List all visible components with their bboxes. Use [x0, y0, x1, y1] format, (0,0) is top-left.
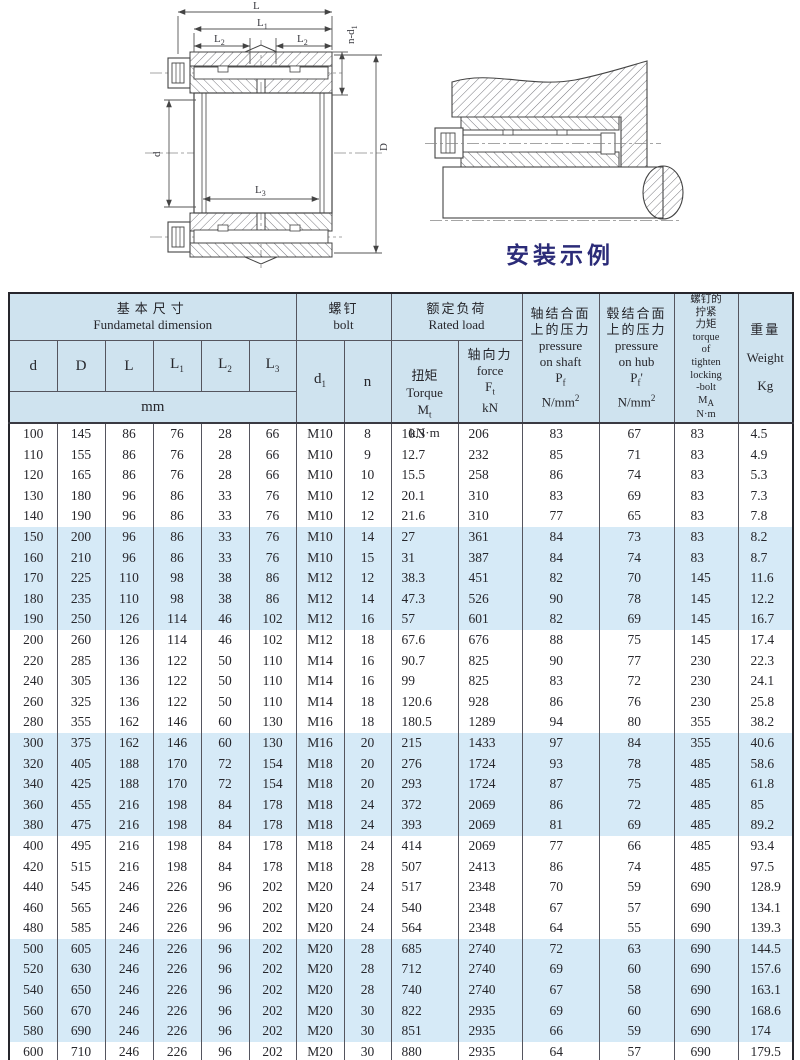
cell-L2: 96: [201, 1042, 249, 1060]
cell-pressure-hub: 72: [599, 795, 674, 816]
table-row: 180 235 110 98 38 86 M12 14 47.3 526 90 …: [9, 589, 793, 610]
cell-axial-force: 825: [458, 671, 522, 692]
bottom-collar: [190, 213, 332, 264]
cell-d1: M16: [296, 733, 344, 754]
cell-d1: M20: [296, 877, 344, 898]
cross-section-drawing: L L1 L2 L2 n-d1: [90, 0, 400, 275]
cell-axial-force: 2348: [458, 898, 522, 919]
cell-L1: 198: [153, 836, 201, 857]
cell-D: 200: [57, 527, 105, 548]
cell-d: 360: [9, 795, 57, 816]
cell-pressure-shaft: 64: [522, 918, 599, 939]
cell-torque: 15.5: [391, 465, 458, 486]
cell-L3: 154: [249, 754, 296, 775]
cell-tighten-torque: 230: [674, 651, 738, 672]
cell-L2: 84: [201, 836, 249, 857]
cell-d: 380: [9, 815, 57, 836]
dim-label-L2-right: L2: [297, 33, 308, 47]
table-row: 440 545 246 226 96 202 M20 24 517 2348 7…: [9, 877, 793, 898]
cell-L1: 198: [153, 857, 201, 878]
cell-tighten-torque: 690: [674, 939, 738, 960]
cell-pressure-hub: 84: [599, 733, 674, 754]
cell-d1: M14: [296, 692, 344, 713]
col-n: n: [344, 341, 391, 424]
cell-d1: M10: [296, 445, 344, 466]
dim-d: [164, 100, 196, 207]
cell-L: 86: [105, 423, 153, 445]
cell-L2: 28: [201, 465, 249, 486]
cell-d: 110: [9, 445, 57, 466]
cell-D: 565: [57, 898, 105, 919]
cell-L1: 198: [153, 795, 201, 816]
cell-L2: 60: [201, 733, 249, 754]
cell-L3: 102: [249, 609, 296, 630]
cell-d: 220: [9, 651, 57, 672]
col-d: d: [9, 341, 57, 392]
cell-d1: M10: [296, 486, 344, 507]
cell-d: 280: [9, 712, 57, 733]
cell-L3: 202: [249, 1001, 296, 1022]
cell-L2: 28: [201, 423, 249, 445]
cell-L3: 202: [249, 939, 296, 960]
cell-d: 600: [9, 1042, 57, 1060]
cell-tighten-torque: 690: [674, 1021, 738, 1042]
cell-pressure-hub: 74: [599, 548, 674, 569]
cell-torque: 99: [391, 671, 458, 692]
table-row: 200 260 126 114 46 102 M12 18 67.6 676 8…: [9, 630, 793, 651]
cell-n: 30: [344, 1042, 391, 1060]
cell-L2: 33: [201, 527, 249, 548]
cell-d: 320: [9, 754, 57, 775]
cell-d1: M10: [296, 527, 344, 548]
cell-n: 16: [344, 671, 391, 692]
cell-D: 375: [57, 733, 105, 754]
cell-d: 520: [9, 959, 57, 980]
spec-table: 基本尺寸 Fundametal dimension 螺钉 bolt 额定负荷 R…: [8, 292, 794, 1060]
table-row: 160 210 96 86 33 76 M10 15 31 387 84 74 …: [9, 548, 793, 569]
cell-L1: 226: [153, 877, 201, 898]
cell-L3: 102: [249, 630, 296, 651]
cell-torque: 685: [391, 939, 458, 960]
cell-pressure-shaft: 86: [522, 857, 599, 878]
cell-L: 136: [105, 651, 153, 672]
cell-d1: M10: [296, 506, 344, 527]
dim-nd1: [332, 52, 348, 95]
cell-L: 126: [105, 630, 153, 651]
dim-label-d: d: [151, 151, 163, 157]
cell-pressure-shaft: 90: [522, 651, 599, 672]
cell-L: 216: [105, 836, 153, 857]
cell-tighten-torque: 83: [674, 527, 738, 548]
cell-d1: M16: [296, 712, 344, 733]
cell-L: 246: [105, 1042, 153, 1060]
cell-L2: 38: [201, 589, 249, 610]
cell-torque: 20.1: [391, 486, 458, 507]
cell-L2: 72: [201, 774, 249, 795]
cell-L3: 110: [249, 651, 296, 672]
cell-L3: 178: [249, 857, 296, 878]
cell-pressure-hub: 65: [599, 506, 674, 527]
col-axial-force: 轴向力 force Ft kN: [458, 341, 522, 424]
cell-L2: 84: [201, 815, 249, 836]
cell-D: 425: [57, 774, 105, 795]
cell-axial-force: 310: [458, 506, 522, 527]
cell-L2: 96: [201, 918, 249, 939]
cell-L: 162: [105, 712, 153, 733]
cell-L: 246: [105, 1001, 153, 1022]
cell-L1: 226: [153, 1042, 201, 1060]
cell-L1: 146: [153, 712, 201, 733]
cell-L3: 66: [249, 445, 296, 466]
cell-D: 190: [57, 506, 105, 527]
cell-L: 188: [105, 774, 153, 795]
cell-n: 10: [344, 465, 391, 486]
cell-d: 170: [9, 568, 57, 589]
cell-L: 246: [105, 1021, 153, 1042]
cell-L1: 98: [153, 568, 201, 589]
cell-pressure-hub: 55: [599, 918, 674, 939]
cell-d1: M10: [296, 465, 344, 486]
table-row: 120 165 86 76 28 66 M10 10 15.5 258 86 7…: [9, 465, 793, 486]
cell-L1: 226: [153, 1001, 201, 1022]
installation-drawing: [415, 40, 745, 250]
cell-L3: 110: [249, 671, 296, 692]
cell-axial-force: 2348: [458, 877, 522, 898]
cell-D: 630: [57, 959, 105, 980]
cell-torque: 276: [391, 754, 458, 775]
table-row: 170 225 110 98 38 86 M12 12 38.3 451 82 …: [9, 568, 793, 589]
cell-axial-force: 2935: [458, 1021, 522, 1042]
cell-axial-force: 2413: [458, 857, 522, 878]
cell-d: 400: [9, 836, 57, 857]
cell-L: 216: [105, 795, 153, 816]
cell-L: 86: [105, 465, 153, 486]
cell-d: 160: [9, 548, 57, 569]
table-row: 380 475 216 198 84 178 M18 24 393 2069 8…: [9, 815, 793, 836]
cell-tighten-torque: 690: [674, 1001, 738, 1022]
dim-D: [334, 55, 382, 253]
cell-tighten-torque: 145: [674, 568, 738, 589]
cell-tighten-torque: 83: [674, 423, 738, 445]
cell-axial-force: 601: [458, 609, 522, 630]
cell-D: 585: [57, 918, 105, 939]
cell-tighten-torque: 83: [674, 506, 738, 527]
cell-pressure-hub: 72: [599, 671, 674, 692]
cell-torque: 27: [391, 527, 458, 548]
cell-pressure-hub: 77: [599, 651, 674, 672]
cell-L1: 114: [153, 630, 201, 651]
cell-axial-force: 1724: [458, 774, 522, 795]
cell-tighten-torque: 83: [674, 465, 738, 486]
cell-n: 14: [344, 589, 391, 610]
catalog-page: L L1 L2 L2 n-d1: [0, 0, 800, 1060]
col-L: L: [105, 341, 153, 392]
cell-L2: 46: [201, 630, 249, 651]
cell-pressure-hub: 66: [599, 836, 674, 857]
cell-n: 16: [344, 609, 391, 630]
table-row: 240 305 136 122 50 110 M14 16 99 825 83 …: [9, 671, 793, 692]
cell-tighten-torque: 145: [674, 609, 738, 630]
cell-n: 30: [344, 1021, 391, 1042]
cell-n: 8: [344, 423, 391, 445]
cell-L2: 96: [201, 939, 249, 960]
cell-n: 14: [344, 527, 391, 548]
cell-d1: M20: [296, 959, 344, 980]
cell-weight: 24.1: [738, 671, 793, 692]
cell-D: 260: [57, 630, 105, 651]
cell-torque: 822: [391, 1001, 458, 1022]
cell-D: 650: [57, 980, 105, 1001]
cell-L1: 114: [153, 609, 201, 630]
cell-axial-force: 2348: [458, 918, 522, 939]
cell-torque: 120.6: [391, 692, 458, 713]
cell-D: 605: [57, 939, 105, 960]
cell-L3: 178: [249, 815, 296, 836]
cell-d: 200: [9, 630, 57, 651]
cell-pressure-shaft: 88: [522, 630, 599, 651]
dim-label-D: D: [378, 143, 390, 151]
cell-L: 246: [105, 959, 153, 980]
cell-L1: 122: [153, 671, 201, 692]
cell-L3: 202: [249, 1021, 296, 1042]
cell-pressure-shaft: 86: [522, 465, 599, 486]
cell-L: 162: [105, 733, 153, 754]
cell-L1: 226: [153, 959, 201, 980]
cell-pressure-shaft: 66: [522, 1021, 599, 1042]
cell-d1: M20: [296, 1001, 344, 1022]
drawing-area: L L1 L2 L2 n-d1: [0, 0, 800, 292]
shaft: [430, 166, 683, 221]
header-rated-load: 额定负荷 Rated load: [391, 293, 522, 341]
cell-L2: 33: [201, 548, 249, 569]
cell-L1: 86: [153, 548, 201, 569]
header-basic-dimension: 基本尺寸 Fundametal dimension: [9, 293, 296, 341]
col-L2: L2: [201, 341, 249, 392]
table-row: 500 605 246 226 96 202 M20 28 685 2740 7…: [9, 939, 793, 960]
cell-torque: 47.3: [391, 589, 458, 610]
cell-d: 130: [9, 486, 57, 507]
cell-torque: 740: [391, 980, 458, 1001]
bolt-top: [168, 58, 190, 88]
cell-axial-force: 310: [458, 486, 522, 507]
cell-d1: M20: [296, 980, 344, 1001]
cell-n: 28: [344, 980, 391, 1001]
cell-axial-force: 1433: [458, 733, 522, 754]
cell-L1: 76: [153, 423, 201, 445]
table-row: 580 690 246 226 96 202 M20 30 851 2935 6…: [9, 1021, 793, 1042]
cell-weight: 174: [738, 1021, 793, 1042]
dim-label-nd1: n-d1: [345, 25, 359, 44]
cell-weight: 85: [738, 795, 793, 816]
cell-weight: 11.6: [738, 568, 793, 589]
cell-d1: M20: [296, 918, 344, 939]
cell-tighten-torque: 230: [674, 692, 738, 713]
cell-L: 110: [105, 589, 153, 610]
table-row: 400 495 216 198 84 178 M18 24 414 2069 7…: [9, 836, 793, 857]
cell-tighten-torque: 145: [674, 630, 738, 651]
cell-pressure-shaft: 97: [522, 733, 599, 754]
cell-axial-force: 2069: [458, 836, 522, 857]
cell-torque: 393: [391, 815, 458, 836]
cell-pressure-hub: 78: [599, 589, 674, 610]
cell-n: 24: [344, 898, 391, 919]
cell-axial-force: 825: [458, 651, 522, 672]
cell-d: 300: [9, 733, 57, 754]
cell-torque: 180.5: [391, 712, 458, 733]
col-torque: 扭矩 Torque Mt kN·m: [391, 341, 458, 424]
installation-caption: 安装示例: [472, 236, 648, 270]
table-body: 100 145 86 76 28 66 M10 8 10.3 206 83 67…: [9, 423, 793, 1060]
cell-pressure-hub: 73: [599, 527, 674, 548]
cell-pressure-hub: 57: [599, 898, 674, 919]
cell-weight: 61.8: [738, 774, 793, 795]
cell-weight: 163.1: [738, 980, 793, 1001]
cell-pressure-shaft: 87: [522, 774, 599, 795]
cell-L3: 202: [249, 980, 296, 1001]
cell-pressure-hub: 60: [599, 959, 674, 980]
cell-pressure-hub: 76: [599, 692, 674, 713]
cell-L1: 98: [153, 589, 201, 610]
cell-d: 560: [9, 1001, 57, 1022]
cell-d: 120: [9, 465, 57, 486]
dim-label-L: L: [253, 0, 260, 12]
cell-axial-force: 2069: [458, 795, 522, 816]
cell-d: 140: [9, 506, 57, 527]
cell-d1: M18: [296, 815, 344, 836]
cell-torque: 215: [391, 733, 458, 754]
cell-L: 86: [105, 445, 153, 466]
cell-d: 180: [9, 589, 57, 610]
header-bolt: 螺钉 bolt: [296, 293, 391, 341]
cell-L: 110: [105, 568, 153, 589]
cell-pressure-hub: 58: [599, 980, 674, 1001]
cell-pressure-shaft: 81: [522, 815, 599, 836]
cell-D: 355: [57, 712, 105, 733]
cell-pressure-hub: 63: [599, 939, 674, 960]
cell-L2: 38: [201, 568, 249, 589]
cell-n: 12: [344, 568, 391, 589]
cell-tighten-torque: 485: [674, 857, 738, 878]
cell-d: 100: [9, 423, 57, 445]
cell-n: 24: [344, 795, 391, 816]
cell-torque: 12.7: [391, 445, 458, 466]
cell-weight: 22.3: [738, 651, 793, 672]
cell-L: 246: [105, 898, 153, 919]
cell-L3: 178: [249, 795, 296, 816]
cell-L1: 226: [153, 898, 201, 919]
cell-pressure-shaft: 86: [522, 692, 599, 713]
cell-L1: 226: [153, 939, 201, 960]
cell-torque: 851: [391, 1021, 458, 1042]
cell-L1: 86: [153, 506, 201, 527]
cell-pressure-shaft: 84: [522, 527, 599, 548]
cell-d1: M10: [296, 423, 344, 445]
cell-torque: 372: [391, 795, 458, 816]
cell-d: 420: [9, 857, 57, 878]
cell-pressure-shaft: 85: [522, 445, 599, 466]
cell-L: 246: [105, 939, 153, 960]
cell-axial-force: 928: [458, 692, 522, 713]
cell-L2: 50: [201, 651, 249, 672]
cell-axial-force: 2740: [458, 980, 522, 1001]
cell-pressure-shaft: 93: [522, 754, 599, 775]
cell-n: 16: [344, 651, 391, 672]
cell-pressure-shaft: 64: [522, 1042, 599, 1060]
cell-d1: M18: [296, 857, 344, 878]
cell-d1: M14: [296, 651, 344, 672]
cell-pressure-hub: 75: [599, 630, 674, 651]
cell-L2: 96: [201, 980, 249, 1001]
cell-axial-force: 2740: [458, 959, 522, 980]
header-tightening-torque: 螺钉的 拧紧 力矩 torque of tighten locking -bol…: [674, 293, 738, 423]
cell-d: 260: [9, 692, 57, 713]
cell-L3: 154: [249, 774, 296, 795]
cell-pressure-hub: 57: [599, 1042, 674, 1060]
table-row: 280 355 162 146 60 130 M16 18 180.5 1289…: [9, 712, 793, 733]
cell-weight: 4.9: [738, 445, 793, 466]
cell-L1: 170: [153, 754, 201, 775]
table-row: 340 425 188 170 72 154 M18 20 293 1724 8…: [9, 774, 793, 795]
cell-n: 28: [344, 857, 391, 878]
cell-L: 96: [105, 486, 153, 507]
cell-torque: 414: [391, 836, 458, 857]
cell-L1: 226: [153, 918, 201, 939]
cell-tighten-torque: 690: [674, 1042, 738, 1060]
cell-torque: 507: [391, 857, 458, 878]
cell-d1: M18: [296, 836, 344, 857]
cell-n: 9: [344, 445, 391, 466]
cell-L: 96: [105, 527, 153, 548]
cell-L3: 76: [249, 527, 296, 548]
col-D: D: [57, 341, 105, 392]
cell-pressure-shaft: 72: [522, 939, 599, 960]
cell-weight: 97.5: [738, 857, 793, 878]
cell-n: 20: [344, 733, 391, 754]
cell-pressure-hub: 70: [599, 568, 674, 589]
cell-tighten-torque: 145: [674, 589, 738, 610]
table-row: 480 585 246 226 96 202 M20 24 564 2348 6…: [9, 918, 793, 939]
cell-tighten-torque: 690: [674, 959, 738, 980]
cell-L2: 96: [201, 877, 249, 898]
cell-pressure-shaft: 67: [522, 980, 599, 1001]
cell-weight: 17.4: [738, 630, 793, 651]
cell-n: 20: [344, 754, 391, 775]
cell-weight: 8.2: [738, 527, 793, 548]
cell-L3: 202: [249, 959, 296, 980]
cell-n: 18: [344, 630, 391, 651]
cell-n: 24: [344, 815, 391, 836]
cell-L3: 76: [249, 486, 296, 507]
cell-pressure-hub: 75: [599, 774, 674, 795]
cell-tighten-torque: 690: [674, 980, 738, 1001]
cell-weight: 4.5: [738, 423, 793, 445]
cell-axial-force: 387: [458, 548, 522, 569]
col-d1: d1: [296, 341, 344, 424]
cell-D: 165: [57, 465, 105, 486]
cell-n: 18: [344, 712, 391, 733]
dim-label-L2-left: L2: [214, 33, 225, 47]
cell-axial-force: 451: [458, 568, 522, 589]
cell-weight: 89.2: [738, 815, 793, 836]
cell-D: 710: [57, 1042, 105, 1060]
cell-d: 150: [9, 527, 57, 548]
cell-tighten-torque: 485: [674, 774, 738, 795]
cell-D: 225: [57, 568, 105, 589]
cell-L: 96: [105, 548, 153, 569]
cell-D: 180: [57, 486, 105, 507]
cell-pressure-shaft: 90: [522, 589, 599, 610]
cell-d: 500: [9, 939, 57, 960]
